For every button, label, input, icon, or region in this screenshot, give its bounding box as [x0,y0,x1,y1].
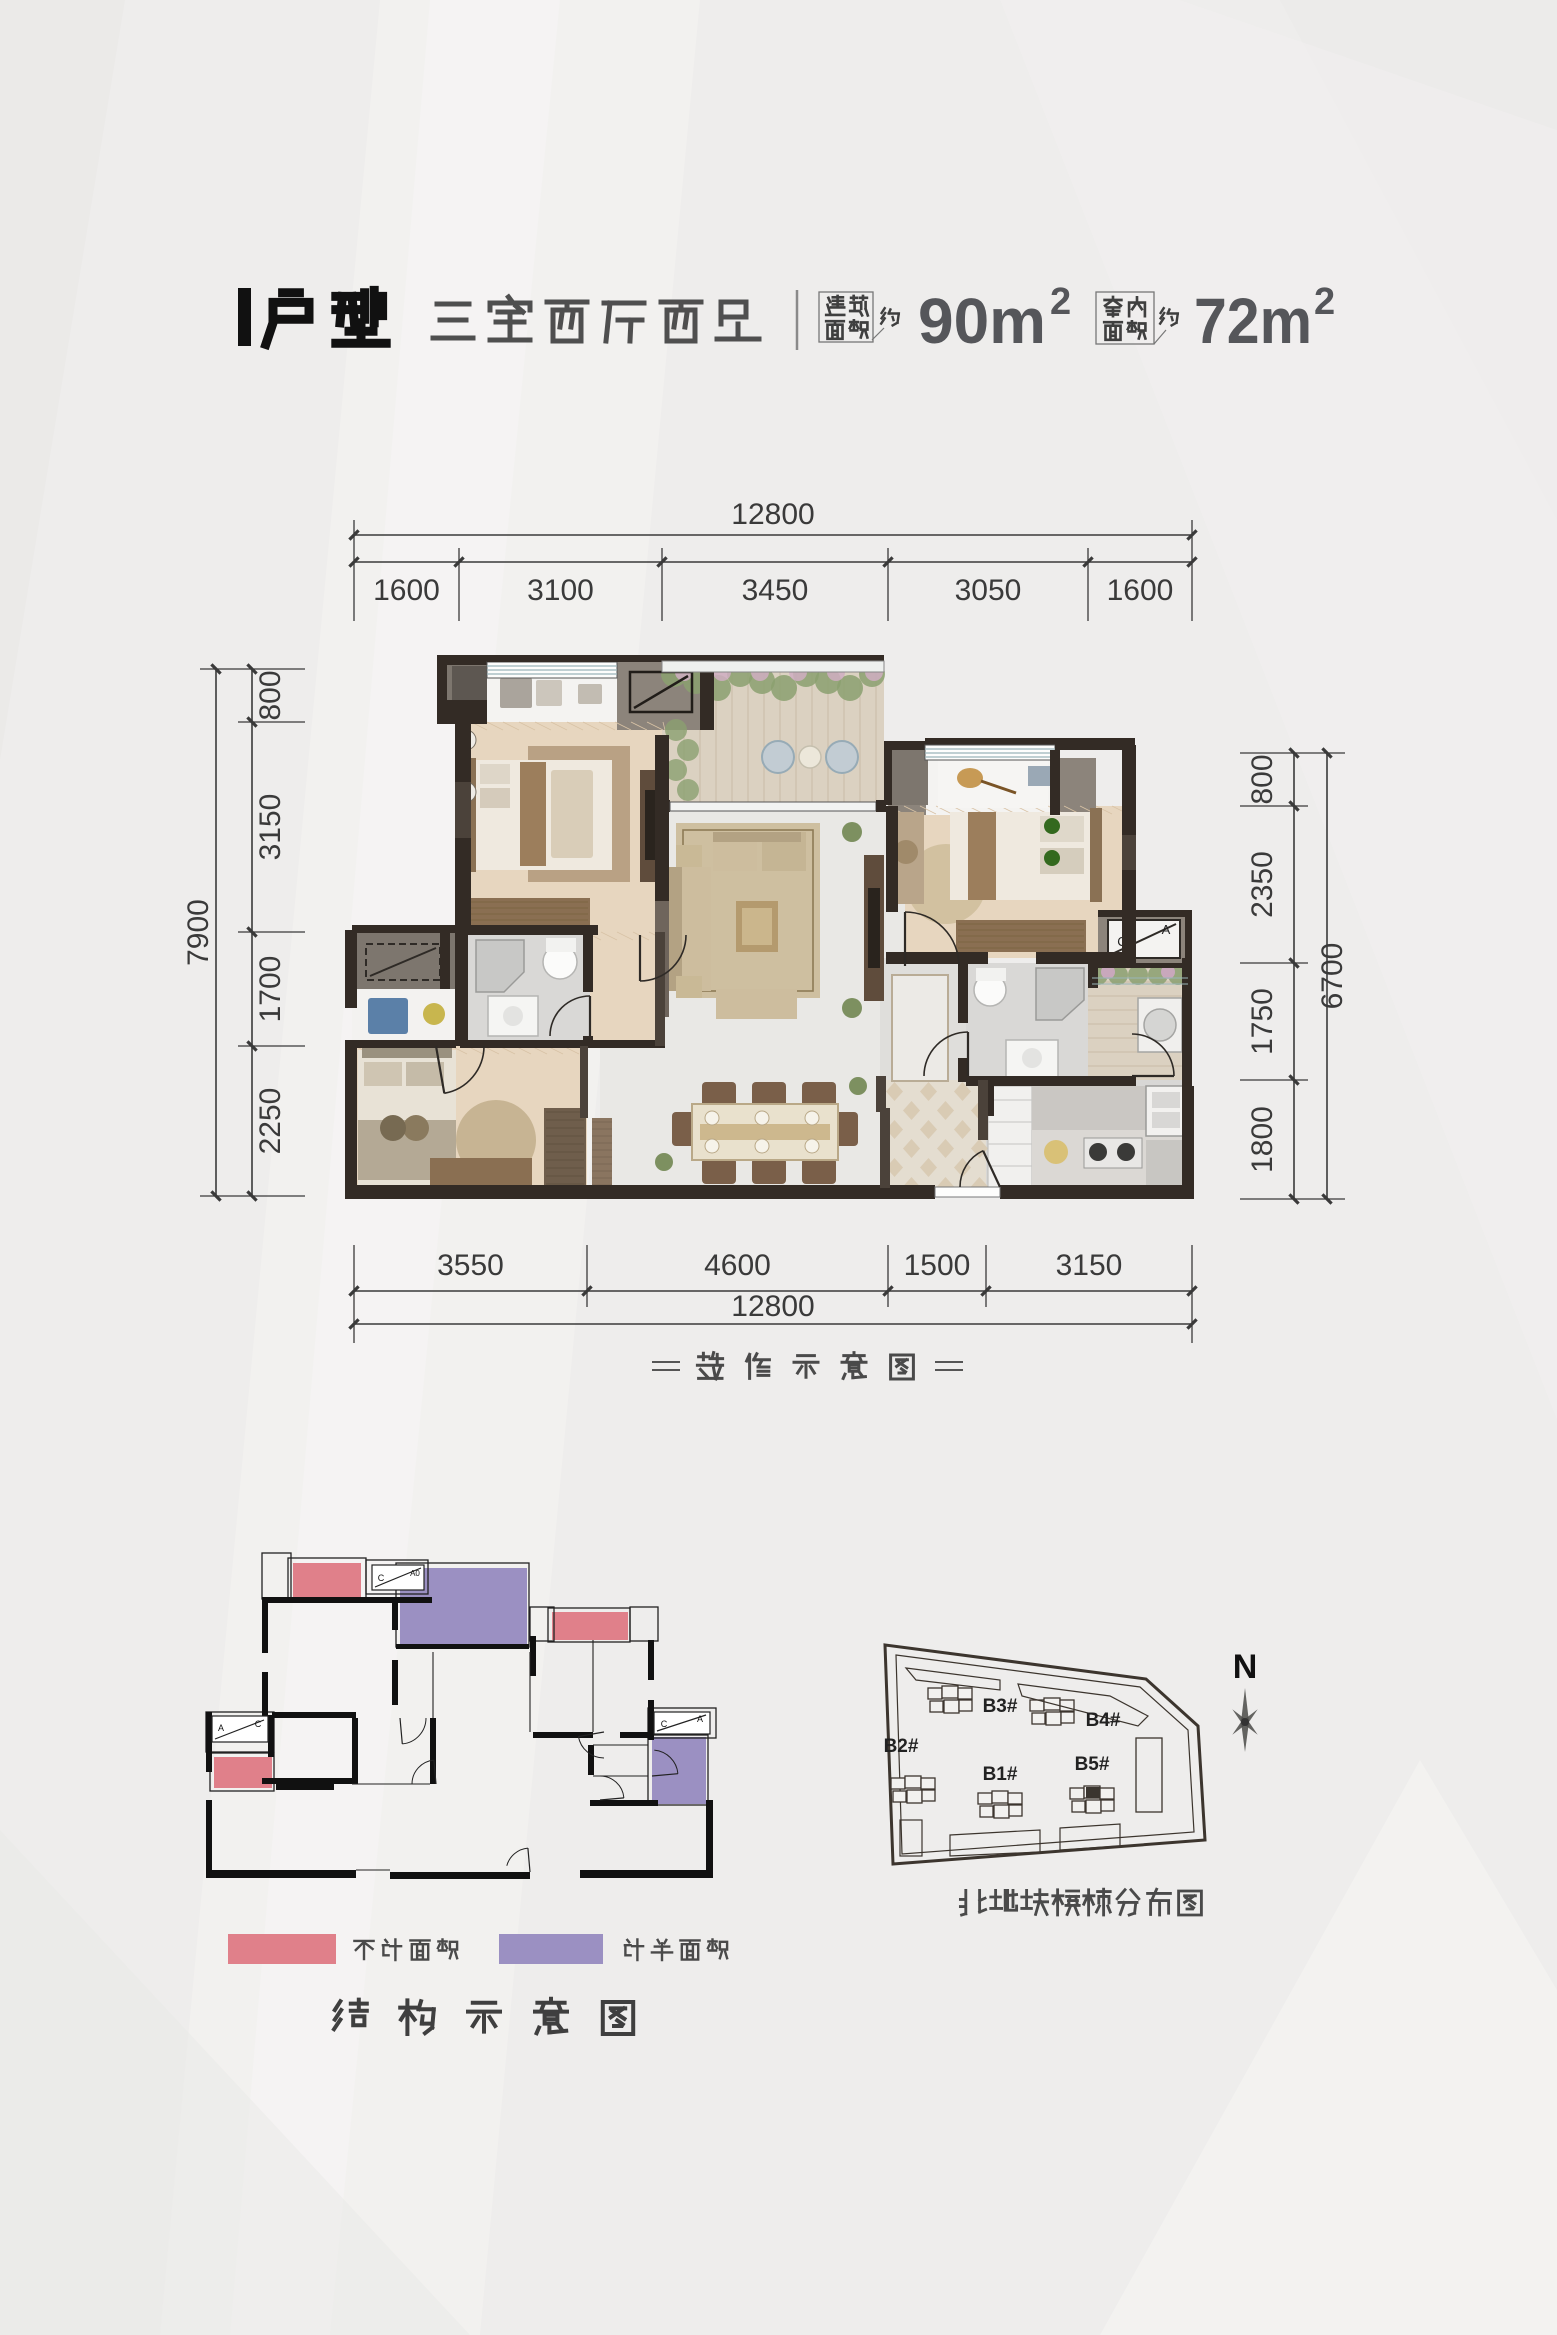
svg-text:3450: 3450 [742,574,809,607]
svg-text:1600: 1600 [373,574,440,607]
svg-text:A: A [697,1714,703,1724]
svg-text:B3#: B3# [983,1696,1018,1717]
svg-text:B4#: B4# [1086,1710,1121,1731]
svg-text:C: C [255,1719,262,1729]
svg-text:A: A [1162,922,1171,937]
svg-text:4600: 4600 [704,1249,771,1282]
svg-text:2350: 2350 [1246,851,1279,918]
svg-text:N: N [1233,1648,1258,1686]
svg-text:A: A [218,1723,224,1733]
svg-text:3100: 3100 [527,574,594,607]
svg-text:1500: 1500 [904,1249,971,1282]
svg-text:1700: 1700 [254,956,287,1023]
svg-text:A0: A0 [410,1569,420,1578]
svg-text:1600: 1600 [1107,574,1174,607]
svg-text:3150: 3150 [254,794,287,861]
svg-text:2: 2 [1050,281,1071,323]
svg-text:1800: 1800 [1246,1106,1279,1173]
svg-text:B2#: B2# [884,1736,919,1757]
svg-text:C: C [378,1573,385,1583]
svg-text:800: 800 [1246,754,1279,804]
svg-text:90m: 90m [918,285,1046,357]
svg-text:12800: 12800 [731,1290,814,1323]
svg-text:1750: 1750 [1246,988,1279,1055]
svg-text:B5#: B5# [1075,1754,1110,1775]
svg-text:C: C [661,1719,668,1729]
svg-text:6700: 6700 [1316,943,1349,1010]
svg-text:7900: 7900 [182,899,215,966]
svg-text:3150: 3150 [1056,1249,1123,1282]
svg-text:12800: 12800 [731,498,814,531]
svg-text:72m: 72m [1194,285,1312,357]
svg-text:2250: 2250 [254,1088,287,1155]
svg-text:3050: 3050 [955,574,1022,607]
svg-text:800: 800 [254,670,287,720]
svg-text:2: 2 [1314,281,1335,323]
svg-text:3550: 3550 [437,1249,504,1282]
svg-text:B1#: B1# [983,1764,1018,1785]
